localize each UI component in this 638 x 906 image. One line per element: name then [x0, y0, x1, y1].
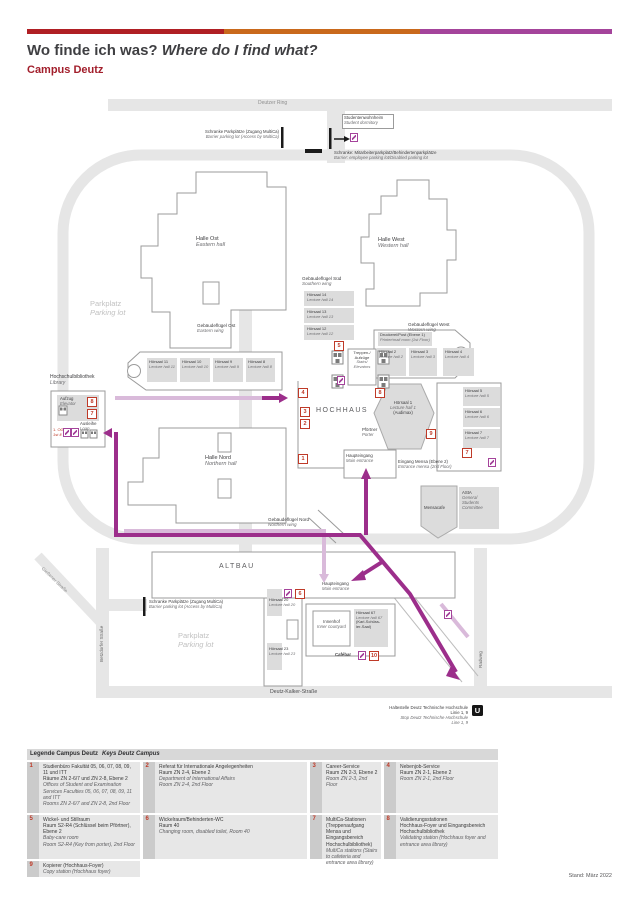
marker-2: 2: [300, 419, 310, 429]
elevator-label: AufzugElevator: [60, 397, 76, 407]
legend-item-2: 2 Referat für Internationale Angelegenhe…: [143, 762, 307, 813]
multica-station-icon: [488, 458, 496, 467]
student-dormitory-label: StudentenwohnheimStudent dormitory: [344, 116, 383, 126]
transit-stop-label: Haltestelle Deutz Technische Hochschule …: [352, 706, 468, 726]
marker-7-mensa: 7: [462, 448, 472, 458]
hall-11-label: Hörsaal 11Lecture hall 11: [149, 360, 175, 369]
street-betzdorfer: Betzdorfer Straße: [99, 626, 104, 662]
marker-1: 1: [298, 454, 308, 464]
multica-station-icon: [63, 428, 71, 437]
marker-7-library: 7: [87, 409, 97, 419]
hall-6-label: Hörsaal 6Lecture hall 6: [465, 410, 489, 419]
halle-ost-label: Halle OstEastern hall: [196, 236, 225, 249]
hall-7-label: Hörsaal 7Lecture hall 7: [465, 431, 489, 440]
hall-20-label: Hörsaal 20Lecture hall 20: [269, 598, 295, 607]
hall-2-label: Hörsaal 2Lecture hall 2: [379, 350, 403, 359]
halle-nord-label: Halle NordNorthern hall: [205, 455, 237, 468]
marker-10-cafebar: 10: [369, 651, 379, 661]
hall-12-label: Hörsaal 12Lecture hall 12: [307, 327, 333, 336]
parking-lot-top-label: ParkplatzParking lot: [90, 300, 125, 318]
innenhof-label: InnenhofInner courtyard: [314, 620, 349, 630]
legend-item-4: 4 Nebenjob-Service Raum ZN 2-1, Ebene 2R…: [384, 762, 498, 813]
legend-header: Legende Campus DeutzKeys Deutz Campus: [27, 749, 498, 760]
marker-6-altbau: 6: [295, 589, 305, 599]
marker-8-library: 8: [87, 397, 97, 407]
legend-item-8: 8 Validierungsstationen Hochhaus-Foyer u…: [384, 815, 498, 859]
ubahn-icon: U: [472, 705, 483, 716]
hall-8-label: Hörsaal 8Lecture hall 8: [248, 360, 272, 369]
street-deutzer-ring: Deutzer Ring: [258, 101, 287, 107]
marker-3: 3: [300, 407, 310, 417]
legend-item-6: 6 Wickelraum/Behinderten-WC Raum 40Chang…: [143, 815, 307, 859]
multica-station-icon: [71, 428, 79, 437]
multica-station-icon: [337, 376, 345, 385]
page: { "header": { "title_de": "Wo finde ich …: [0, 0, 638, 906]
hall-10-label: Hörsaal 10Lecture hall 10: [182, 360, 208, 369]
hall-67-label: Hörsaal 67Lecture hall 67(Karl-Schüss- l…: [356, 611, 388, 629]
multica-station-icon: [358, 651, 366, 660]
mensacafe-label: Mensacafe: [424, 506, 445, 511]
multica-station-icon: [350, 133, 358, 142]
stairs-elevators-label: Treppen-/ AufzügeStairs/ Elevators: [349, 351, 375, 369]
marker-4: 4: [298, 388, 308, 398]
legend-item-1: 1 Studienbüro Fakultät 05, 06, 07, 08, 0…: [27, 762, 140, 813]
halle-west-label: Halle WestWestern hall: [378, 237, 408, 250]
barrier-top-label: Schranke Parkplätze (Zugang MultiCa)Barr…: [185, 130, 279, 140]
main-entrance-altbau-label: HaupteingangMain entrance: [322, 582, 349, 592]
wing-east-label: Gebäudeflügel OstEastern wing: [197, 323, 235, 334]
legend-item-5: 5 Wickel- und Stillraum Raum S2-R4 (Schl…: [27, 815, 140, 859]
hall-3-label: Hörsaal 3Lecture hall 3: [411, 350, 435, 359]
barrier-bottom-label: Schranke Parkplätze (Zugang MultiCa)Barr…: [149, 600, 244, 610]
main-entrance-hochhaus-label: HaupteingangMain entrance: [346, 454, 373, 464]
legend-item-9: 9 Kopierer (Hochhaus-Foyer)Copy station …: [27, 861, 140, 877]
wing-north-label: Gebäudeflügel NordNorthern wing: [268, 517, 309, 528]
loan-label: AusleiheLoan: [80, 422, 96, 432]
street-deutz-kalker: Deutz-Kalker-Straße: [270, 689, 317, 695]
multica-station-icon: [444, 610, 452, 619]
print-post-label: Druckerei/Post (Ebene 1)Printer/mail roo…: [380, 333, 430, 342]
marker-8-hochhaus: 8: [375, 388, 385, 398]
pfoertner-label: PförtnerPorter: [362, 428, 377, 438]
hochhaus-label: HOCHHAUS: [316, 407, 368, 415]
parking-lot-bottom-label: ParkplatzParking lot: [178, 632, 213, 650]
wing-south-label: Gebäudeflügel SüdSouthern wing: [302, 276, 341, 287]
altbau-label: ALTBAU: [219, 563, 255, 571]
cafebar-label: Cafébar: [335, 653, 351, 658]
date-stamp: Stand: März 2022: [450, 873, 612, 879]
hall-13-label: Hörsaal 13Lecture hall 13: [307, 310, 333, 319]
marker-9: 9: [426, 429, 436, 439]
street-radweg: Radweg: [478, 651, 483, 668]
hall-5-label: Hörsaal 5Lecture hall 5: [465, 389, 489, 398]
hall-14-label: Hörsaal 14Lecture hall 14: [307, 293, 333, 302]
mensa-entrance-label: Eingang Mensa (Ebene 2)Entrance mensa (2…: [398, 460, 452, 470]
asta-label: AStAGeneral Students Committee: [462, 491, 483, 511]
multica-station-icon: [284, 589, 292, 598]
legend-item-7: 7 MultiCa-Stationen (Treppenaufgang Mens…: [310, 815, 381, 859]
hall-9-label: Hörsaal 9Lecture hall 9: [215, 360, 239, 369]
marker-5: 5: [334, 341, 344, 351]
hall-23-label: Hörsaal 23Lecture hall 23: [269, 647, 295, 656]
hall-4-label: Hörsaal 4Lecture hall 4: [445, 350, 469, 359]
legend-item-3: 3 Career-Service Raum ZN 2-3, Ebene 2Roo…: [310, 762, 381, 813]
barrier-employee-label: Schranke: Mitarbeiterparkplatz/Behindert…: [334, 151, 459, 161]
library-label: HochschulbibliothekLibrary: [50, 375, 94, 387]
hall-1-label: Hörsaal 1Lecture hall 1(Audimax): [381, 401, 425, 416]
